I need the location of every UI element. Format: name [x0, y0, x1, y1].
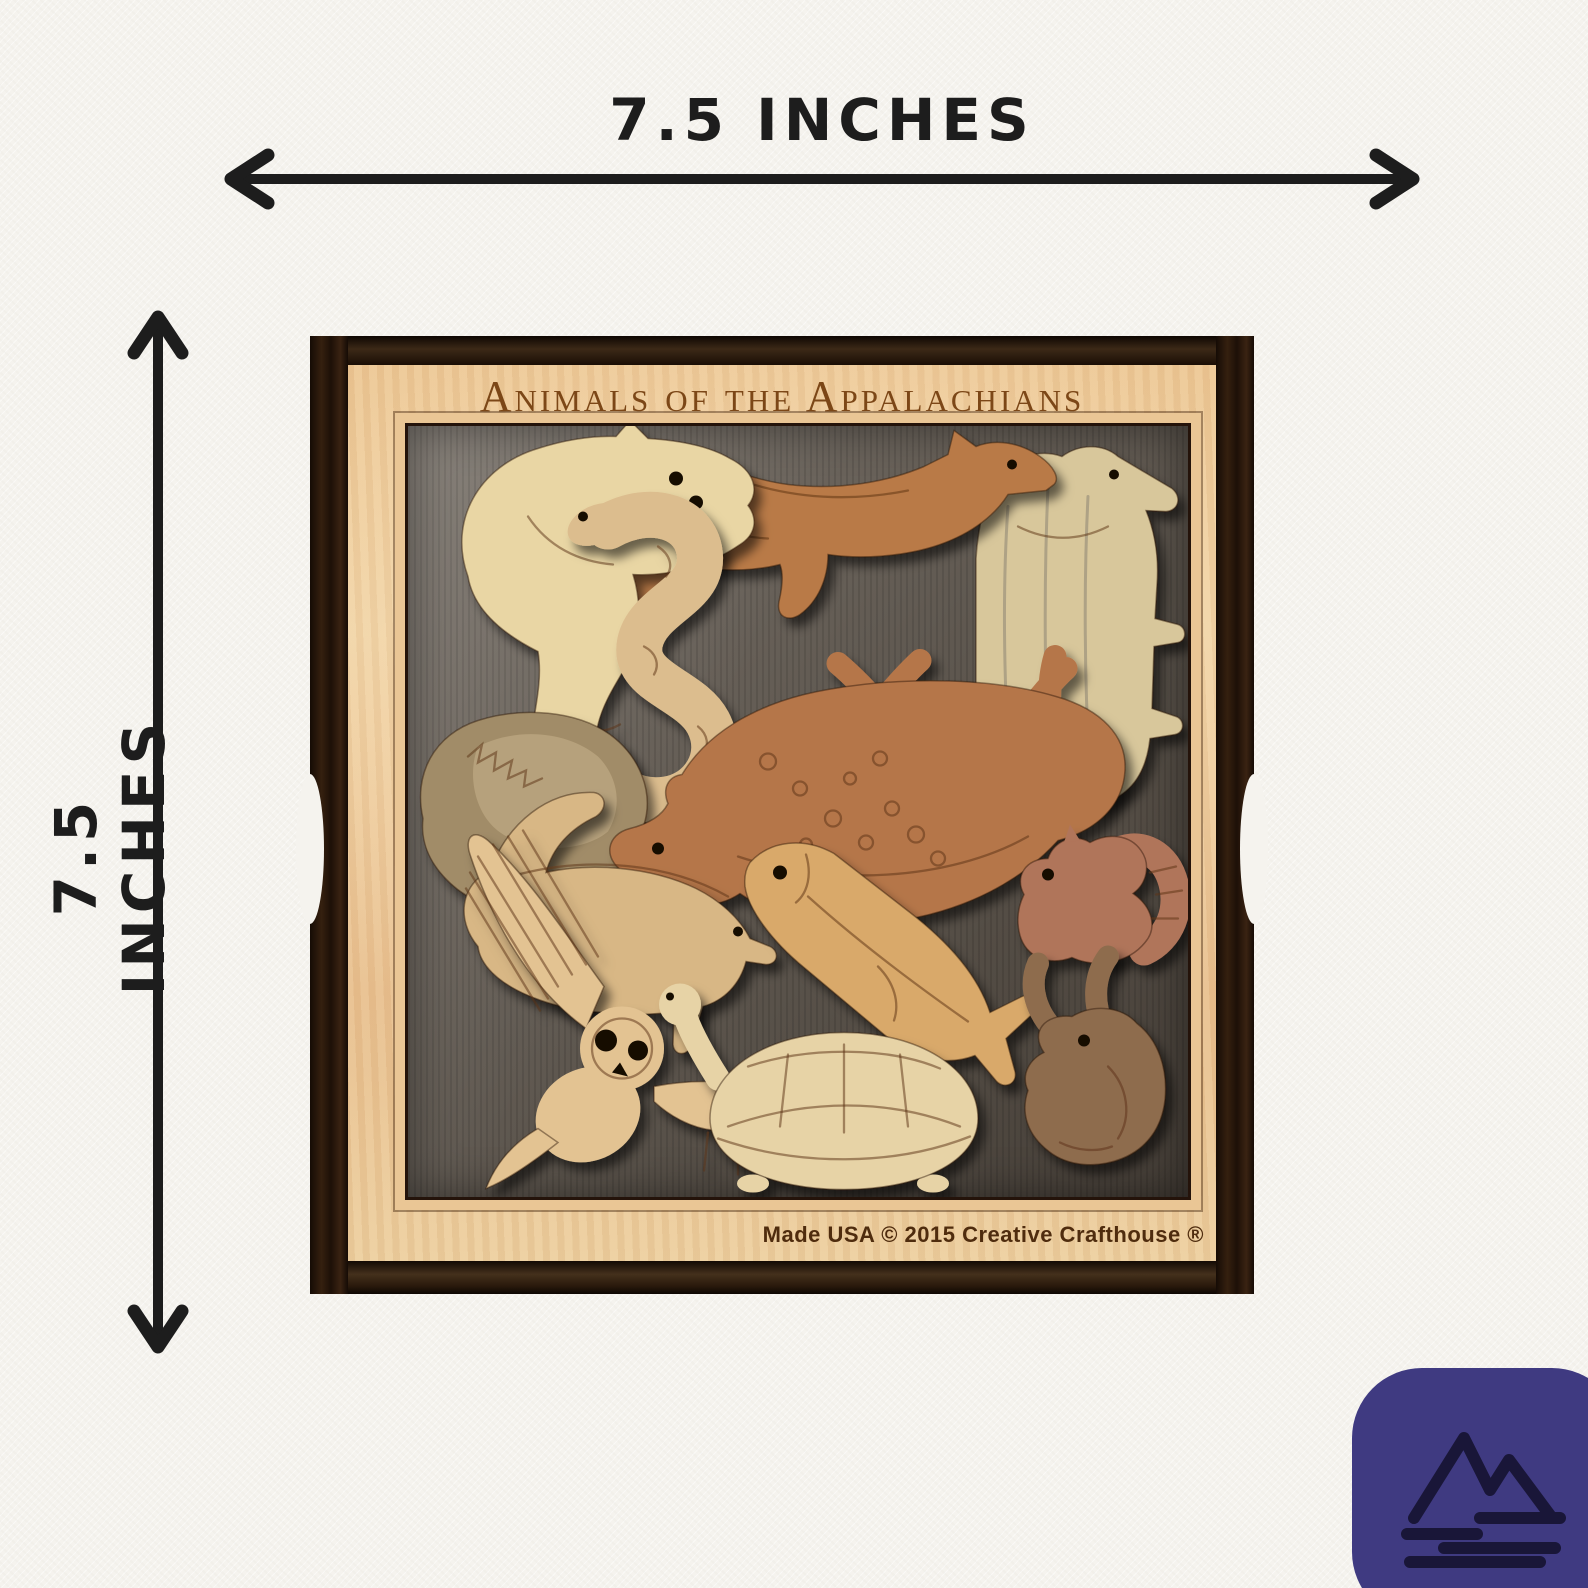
brand-logo — [1352, 1368, 1588, 1588]
puzzle-tray-window — [408, 426, 1188, 1197]
puzzle-title: Animals of the Appalachians — [348, 366, 1216, 426]
width-dimension-arrow-icon — [210, 146, 1434, 212]
puzzle-pieces — [408, 426, 1188, 1197]
height-dimension-arrow-icon — [122, 300, 194, 1362]
wooden-puzzle: Animals of the Appalachians — [310, 336, 1254, 1294]
frame-notch-right — [1240, 774, 1268, 924]
puzzle-frame-rail-bottom — [310, 1261, 1254, 1294]
product-image: 7.5 INCHES 7.5 INCHES Animals of the App… — [0, 0, 1588, 1588]
rabbit-piece — [1025, 957, 1166, 1165]
width-dimension-label: 7.5 INCHES — [210, 86, 1434, 154]
puzzle-footer-engraving: Made USA © 2015 Creative Crafthouse ® — [763, 1212, 1204, 1258]
frame-notch-left — [296, 774, 324, 924]
puzzle-frame-rail-top — [310, 336, 1254, 365]
logo-background — [1352, 1368, 1588, 1588]
